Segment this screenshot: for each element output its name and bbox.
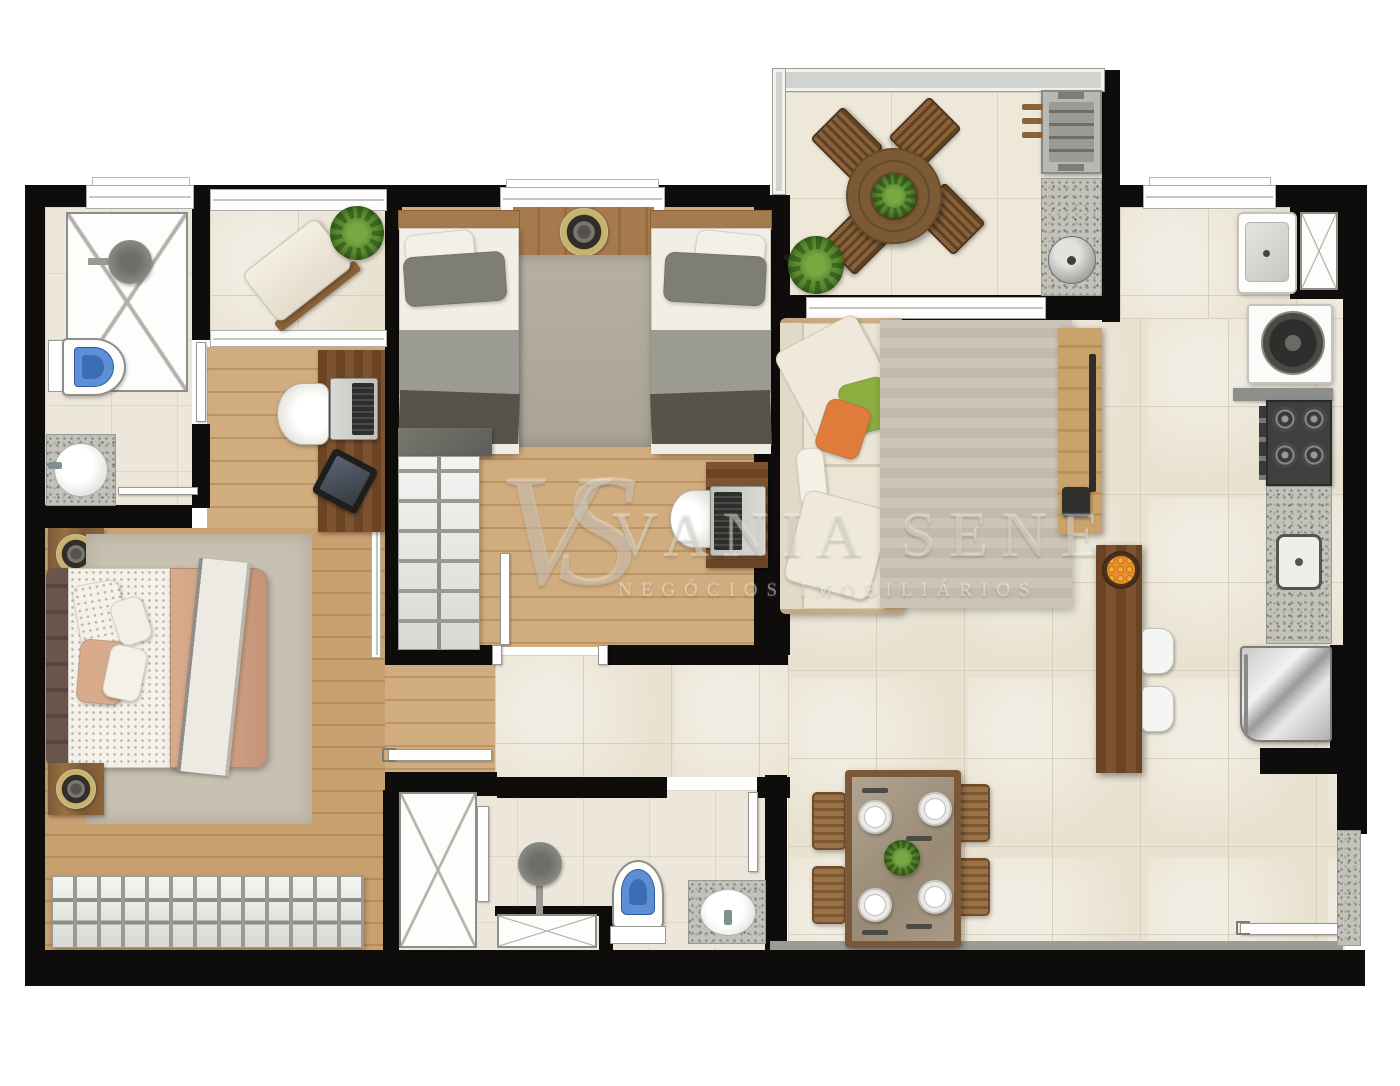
bath1-window (86, 185, 194, 209)
skewer-2 (1022, 118, 1043, 124)
bath1-door-leaf (196, 342, 206, 422)
wall-bath2-top (497, 777, 667, 798)
burner-3 (1272, 442, 1298, 468)
office-laptop-keyboard (352, 383, 374, 435)
balcony-sliding-door (806, 297, 1046, 319)
burner-2 (1301, 406, 1327, 432)
bath2-door-leaf (748, 792, 758, 872)
dining-chair-4 (956, 858, 990, 916)
towel-bar (118, 487, 198, 495)
twin-right-throw (650, 390, 772, 450)
cutlery-2 (906, 836, 932, 841)
place-setting-2 (918, 792, 952, 826)
bath2-shower-head-icon (518, 842, 562, 886)
grill-knob-top (1058, 92, 1084, 99)
balcony-table-plant-icon (872, 174, 916, 218)
office-chair (277, 383, 329, 445)
washing-machine-drum (1261, 311, 1325, 375)
terrace-office-glass-door (210, 330, 387, 347)
bath2-shower-arm (536, 884, 543, 918)
bed2-door-jamb-left (492, 645, 502, 665)
wall-bath1-right-lower (192, 424, 210, 508)
tv-icon (1089, 354, 1096, 492)
bath2-toilet-seat-inner (629, 879, 647, 905)
dining-centerpiece-plant-icon (884, 840, 920, 876)
dining-chair-2 (812, 866, 846, 924)
place-setting-3 (858, 888, 892, 922)
grill-grate (1049, 102, 1094, 162)
linen-closet (399, 792, 477, 948)
master-door-handle (382, 748, 396, 762)
skewer-1 (1022, 104, 1043, 110)
twin-left-frame (398, 210, 520, 230)
twin-right-foot (651, 444, 771, 454)
burner-4 (1301, 442, 1327, 468)
twin-left-cushion (402, 251, 507, 308)
nightstand-lamp-bottom-icon (56, 769, 96, 809)
twin-left-blanket (399, 330, 519, 394)
cutlery-3 (862, 930, 888, 935)
master-headboard (46, 568, 70, 766)
place-setting-4 (918, 880, 952, 914)
master-wardrobe (52, 876, 364, 948)
apartment-floor-plan: VS VANIA SENE NEGÓCIOS IMOBILIÁRIOS (0, 0, 1400, 1086)
wall-bottom (25, 950, 1365, 986)
balcony-parapet-left (772, 68, 786, 195)
bar-stool-1 (1142, 628, 1174, 674)
bed2-shelf (398, 428, 492, 456)
wall-bath1-right-upper (192, 207, 210, 340)
balcony-parapet-top (772, 68, 1105, 92)
wall-left (25, 185, 45, 986)
skewer-3 (1022, 132, 1043, 138)
hall-tile-floor (495, 655, 788, 777)
media-console (1062, 487, 1090, 517)
bath2-sink-faucet (724, 910, 732, 925)
service-door-handle (1236, 921, 1250, 935)
twin-right-frame (650, 210, 772, 230)
bar-stool-2 (1142, 686, 1174, 732)
cutlery-4 (906, 924, 932, 929)
laundry-tank-drain (1263, 250, 1270, 257)
twin-bed-right (650, 210, 772, 454)
sink-faucet (48, 462, 62, 469)
twin-bed-left (398, 210, 520, 454)
fruit-bowl-oranges (1107, 556, 1135, 584)
refrigerator (1240, 646, 1332, 742)
toilet-seat-inner (82, 355, 104, 379)
place-setting-1 (858, 800, 892, 834)
grill-knob-bottom (1058, 164, 1084, 171)
master-mirror-panel (371, 524, 381, 658)
twin-right-blanket (651, 330, 771, 394)
terrace-plant-icon (330, 206, 384, 260)
sink-basin (54, 443, 108, 497)
utility-shaft (1300, 212, 1338, 290)
master-sliding-door (388, 749, 492, 761)
shower-head-icon (108, 240, 152, 284)
cooktop-knobs (1259, 406, 1266, 480)
living-rug (880, 320, 1072, 608)
cutlery-1 (862, 788, 888, 793)
twin-right-cushion (663, 251, 767, 306)
dining-chair-1 (812, 792, 846, 850)
bath2-shower-enclosure (497, 914, 597, 948)
bath2-toilet-base (610, 926, 666, 944)
dining-chair-3 (956, 784, 990, 842)
wall-right-lower (1337, 772, 1367, 834)
closet-door-leaf (477, 806, 489, 902)
kitchen-sink-drain (1295, 558, 1303, 566)
refrigerator-handle (1244, 654, 1248, 736)
balcony-potted-plant-icon (788, 236, 844, 294)
wall-right-upper (1343, 185, 1367, 657)
wall-bath2-right (765, 775, 787, 952)
wall-bath1-bottom (45, 505, 192, 528)
wall-closet-left (383, 790, 399, 950)
balcony-sink-drain (1067, 256, 1076, 265)
bed2-laptop-keyboard (714, 492, 742, 550)
kitchen-window (1143, 185, 1276, 209)
bed2-door-leaf (500, 553, 510, 645)
service-door (1240, 923, 1338, 935)
burner-1 (1272, 406, 1298, 432)
service-entry-counter (1337, 830, 1361, 946)
bed2-door-jamb-right (598, 645, 608, 665)
wall-fridge-niche (1330, 645, 1367, 753)
wall-kitchen-jut (1260, 748, 1367, 774)
bed2-ceiling-light-icon (560, 208, 608, 256)
bed2-center-rug (513, 255, 654, 447)
bed2-wardrobe (398, 456, 480, 650)
